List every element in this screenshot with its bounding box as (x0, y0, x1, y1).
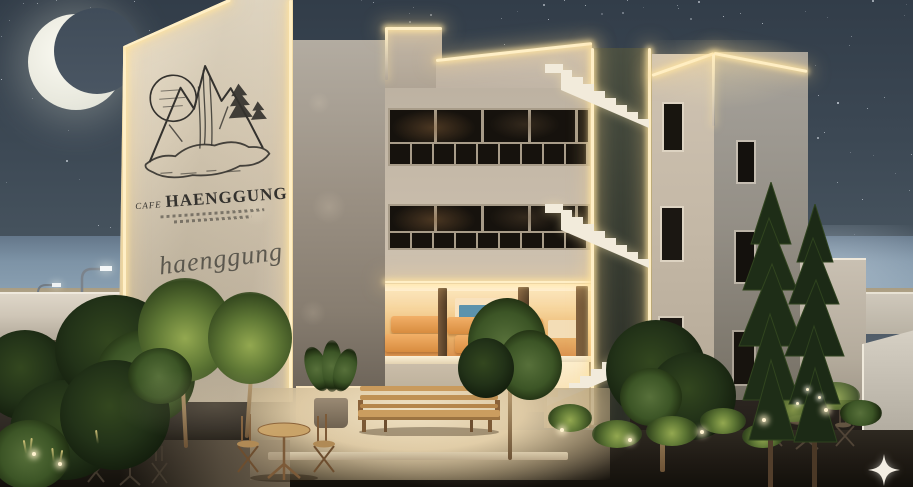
bokeh-flare (312, 190, 346, 224)
star (906, 4, 907, 5)
star (873, 155, 874, 156)
led-strip (385, 28, 388, 80)
star (884, 97, 885, 98)
star (851, 36, 852, 37)
staircase-flight (545, 62, 651, 144)
bokeh-flare (300, 300, 326, 326)
fern (592, 420, 642, 448)
star (818, 95, 819, 96)
ground-light (824, 408, 828, 412)
star (690, 18, 692, 20)
star (909, 190, 910, 191)
star (827, 17, 828, 18)
star (149, 30, 150, 31)
ground-light (762, 418, 766, 422)
star (517, 11, 518, 12)
fern (646, 416, 698, 446)
tree-trunk (508, 388, 512, 460)
logo-artwork (128, 47, 283, 189)
flower-dot (806, 388, 809, 391)
star (895, 173, 896, 174)
star (6, 182, 7, 183)
logo-prefix: CAFE (135, 199, 162, 211)
star (585, 5, 586, 6)
star (817, 137, 819, 139)
flower-dot (796, 402, 799, 405)
star (872, 0, 874, 2)
star (68, 130, 69, 131)
star (9, 20, 10, 21)
star (862, 199, 863, 200)
staircase-flight (545, 202, 651, 284)
window (660, 206, 684, 262)
star (805, 11, 806, 12)
star (413, 7, 414, 8)
star (361, 0, 362, 1)
cafe-logo: CAFE HAENGGUNG (128, 47, 285, 226)
star (56, 0, 57, 1)
ground-light (628, 438, 632, 442)
star (911, 154, 912, 155)
cafe-ceiling (385, 284, 592, 291)
star (850, 152, 851, 153)
window-transom (390, 142, 588, 164)
star (854, 234, 855, 235)
fern (548, 404, 592, 432)
star (66, 160, 68, 162)
star (837, 102, 839, 104)
star (824, 132, 825, 133)
star (904, 15, 905, 16)
star (1, 79, 2, 80)
star (643, 7, 644, 8)
logo-name: HAENGGUNG (165, 184, 288, 212)
star (134, 1, 135, 2)
star (867, 108, 868, 109)
star (837, 182, 838, 183)
star (601, 13, 603, 15)
star (723, 16, 724, 17)
ground-light (560, 428, 564, 432)
star (373, 2, 374, 3)
star (762, 23, 763, 24)
pine-tree (782, 204, 848, 487)
sparkle-watermark-icon (868, 454, 900, 486)
star (677, 5, 678, 6)
star (37, 3, 38, 4)
ground-light (32, 452, 36, 456)
star (79, 179, 80, 180)
star (678, 8, 679, 9)
star (548, 19, 549, 20)
star (501, 18, 502, 19)
star (740, 13, 741, 14)
star (815, 65, 816, 66)
bistro-set (224, 398, 344, 483)
lit-tree-canopy (208, 292, 292, 384)
led-strip (712, 54, 715, 126)
star (430, 14, 432, 16)
star (1, 36, 2, 37)
crescent-moon-icon (28, 14, 124, 110)
garden-tree (458, 338, 514, 398)
lit-tree-canopy (128, 348, 192, 404)
star (23, 3, 24, 4)
star (409, 13, 410, 14)
star (543, 4, 545, 6)
bokeh-flare (308, 92, 330, 114)
window (662, 102, 684, 152)
led-strip (385, 27, 442, 30)
bench-row (391, 316, 441, 333)
star (110, 227, 111, 228)
star (564, 0, 565, 1)
flower-dot (818, 396, 821, 399)
star (622, 12, 624, 14)
window (736, 140, 756, 184)
wood-column (438, 288, 447, 358)
star (627, 0, 628, 1)
ground-light (700, 430, 704, 434)
star (98, 225, 99, 226)
star (849, 45, 850, 46)
star (698, 1, 700, 3)
star (409, 21, 411, 23)
star (504, 44, 505, 45)
night-render-scene: CAFE HAENGGUNG haenggung (0, 0, 913, 487)
